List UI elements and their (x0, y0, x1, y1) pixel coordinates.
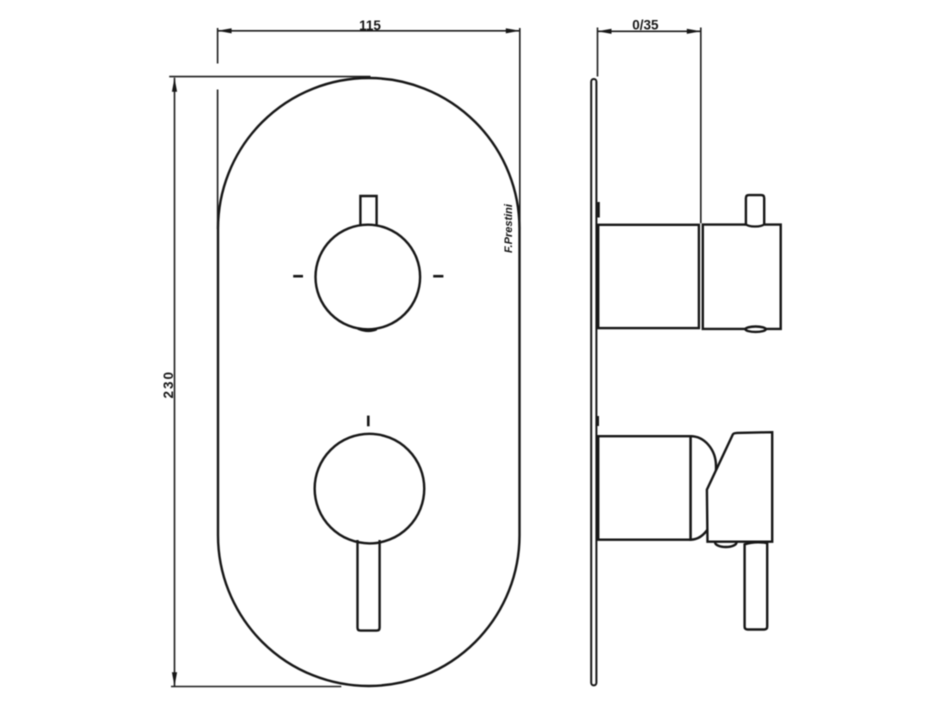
svg-text:F.Prestini: F.Prestini (503, 203, 515, 253)
svg-text:0/35: 0/35 (632, 18, 659, 33)
svg-text:230: 230 (161, 370, 176, 399)
svg-text:115: 115 (359, 18, 381, 33)
